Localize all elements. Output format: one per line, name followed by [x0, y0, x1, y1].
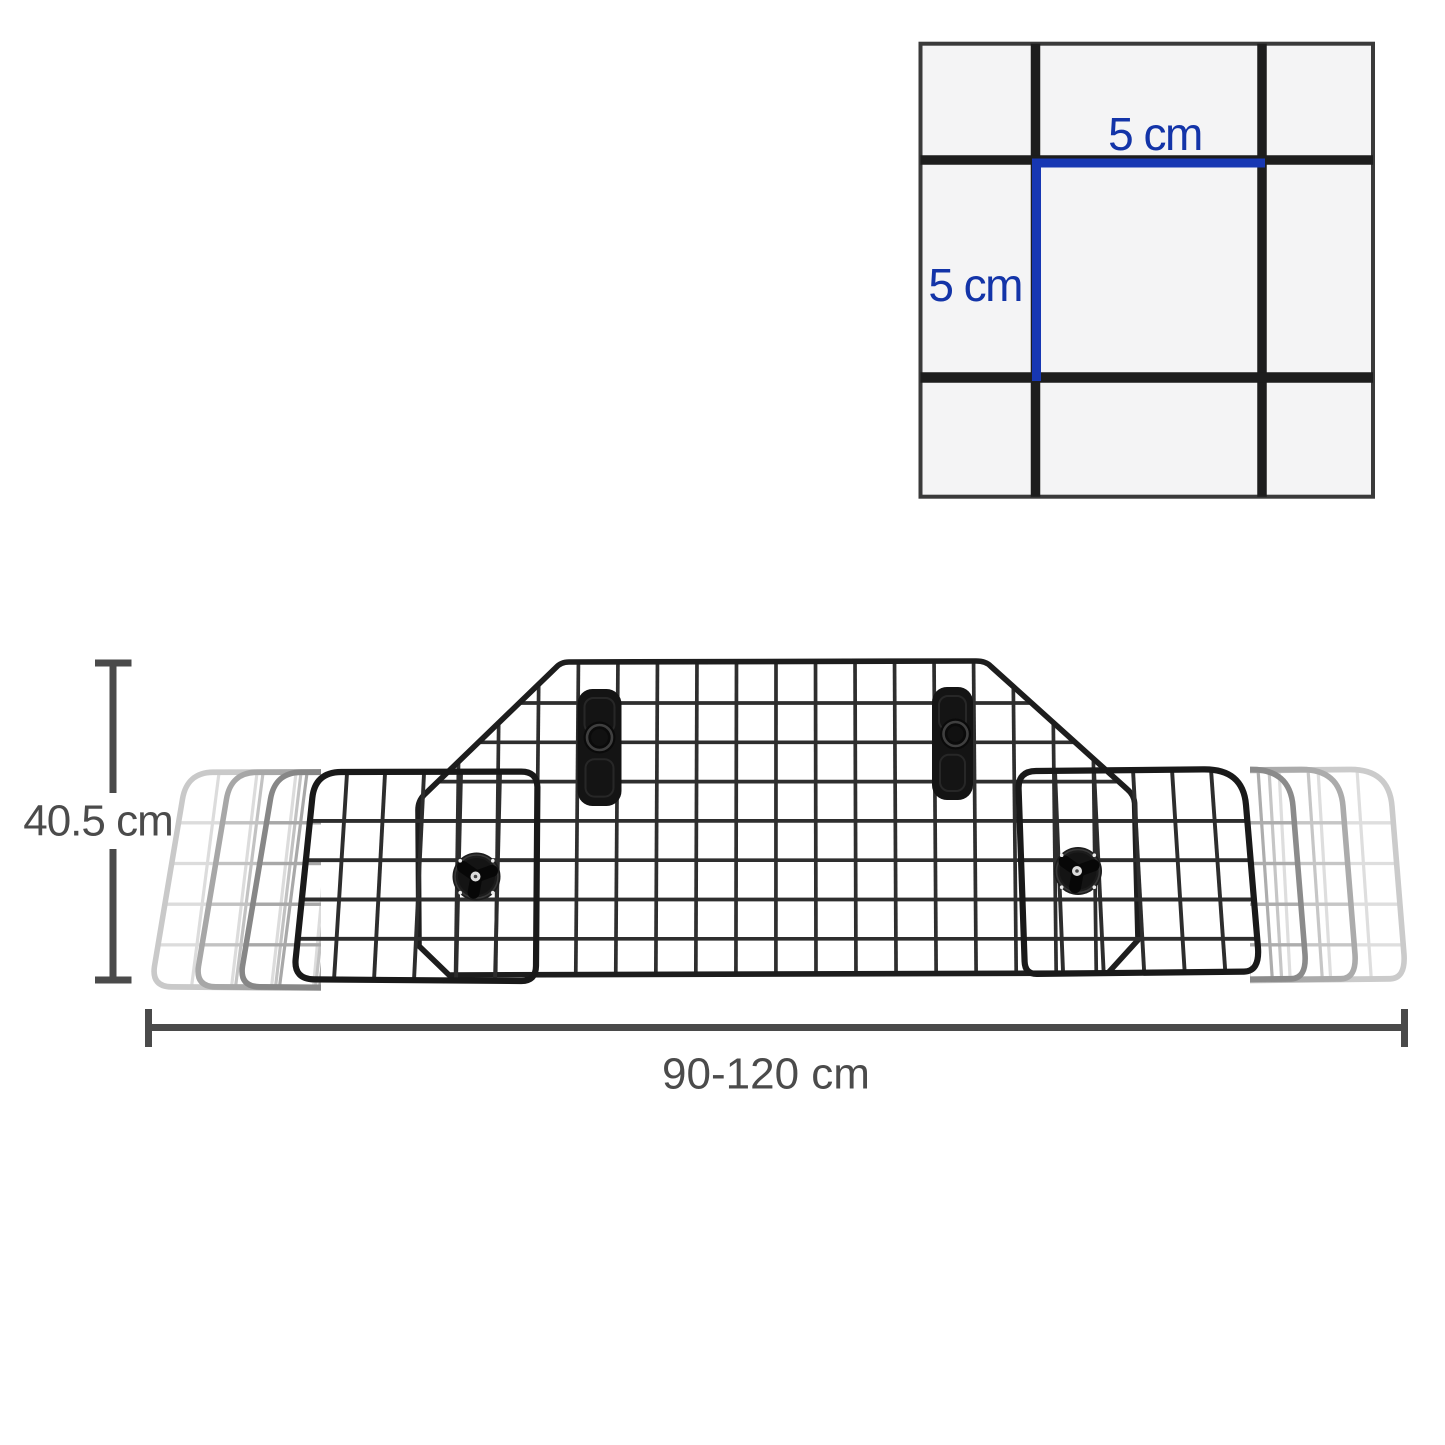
- svg-text:90-120 cm: 90-120 cm: [662, 1050, 870, 1099]
- svg-text:5 cm: 5 cm: [1108, 108, 1202, 160]
- svg-text:40.5 cm: 40.5 cm: [23, 797, 173, 846]
- svg-text:5 cm: 5 cm: [928, 259, 1022, 311]
